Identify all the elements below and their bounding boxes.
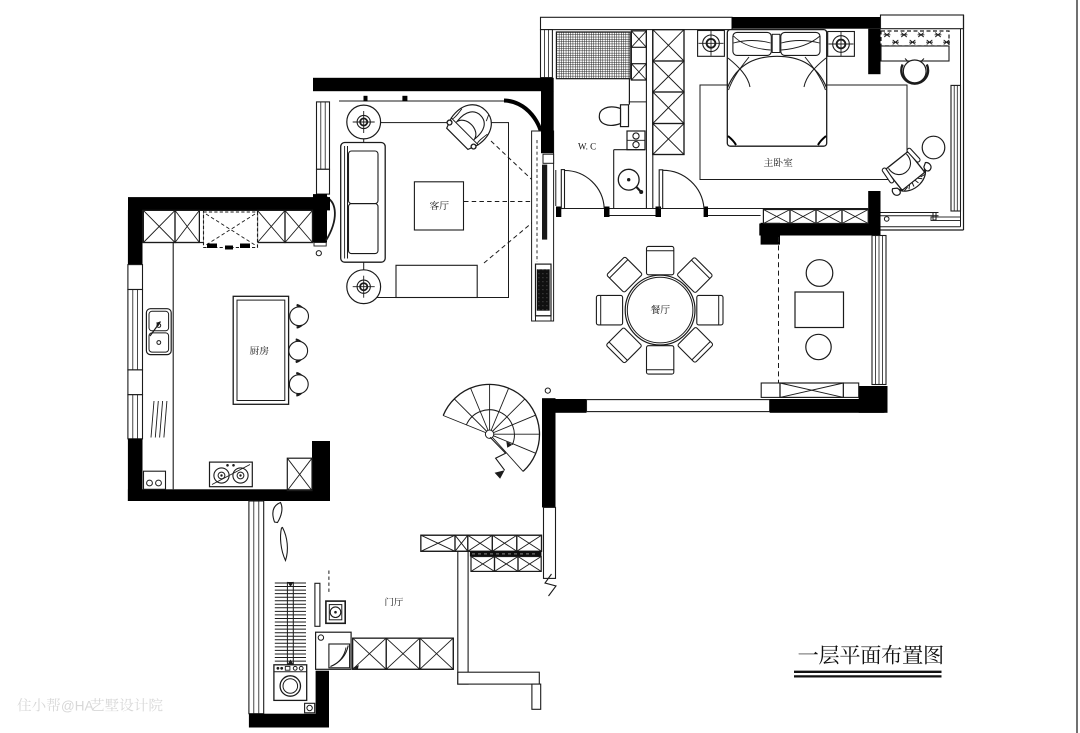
svg-text:@HA: @HA <box>61 699 93 714</box>
svg-text:W. C: W. C <box>578 142 596 152</box>
